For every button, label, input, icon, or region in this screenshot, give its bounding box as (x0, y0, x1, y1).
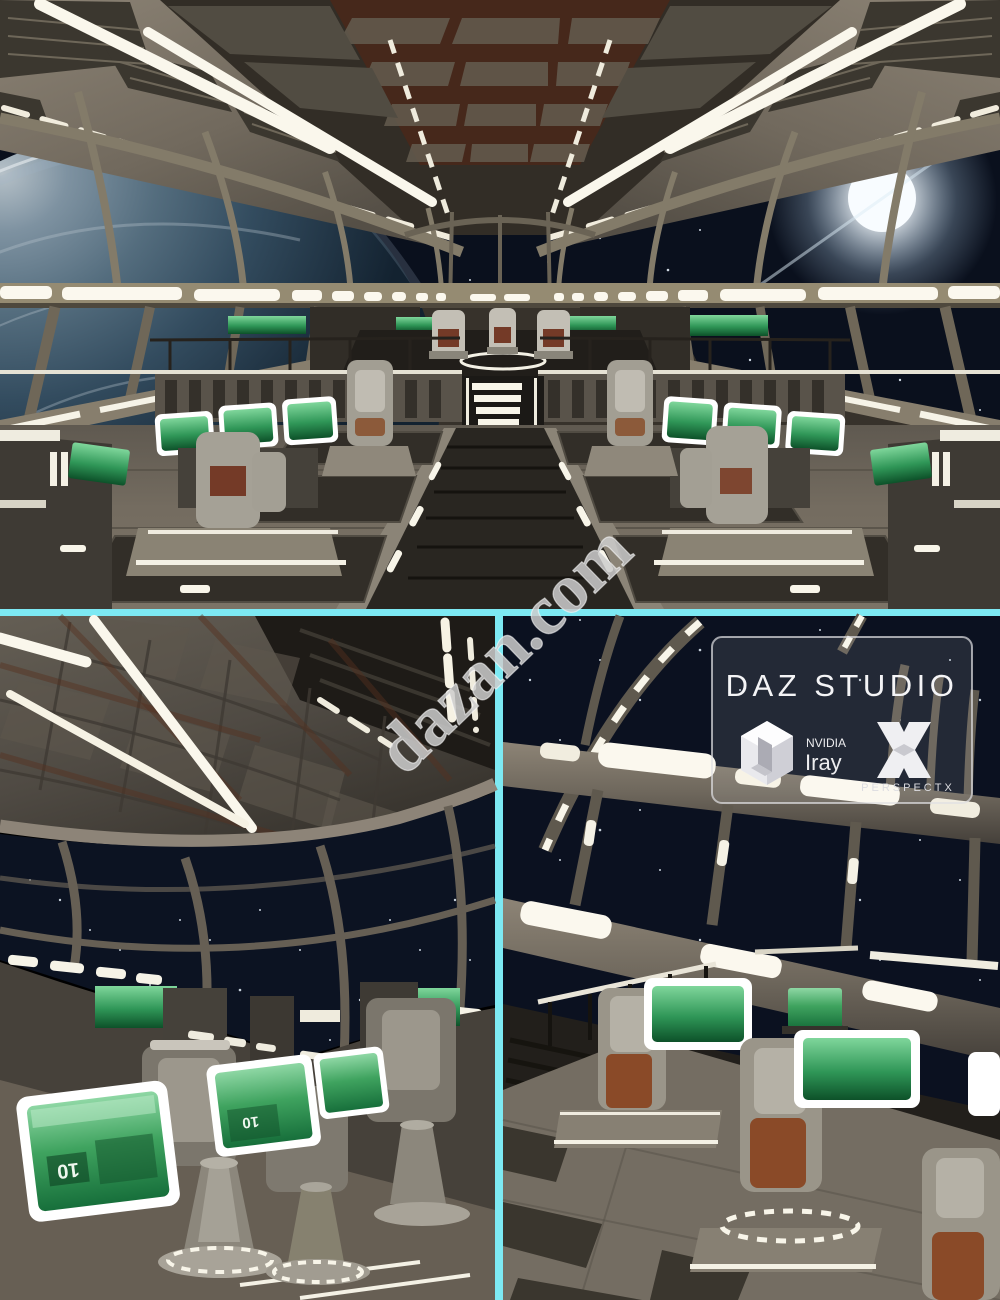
svg-text:DAZ STUDIO: DAZ STUDIO (726, 668, 959, 703)
svg-text:PERSPECTX: PERSPECTX (861, 782, 955, 794)
svg-text:10: 10 (56, 1158, 81, 1183)
svg-text:10: 10 (241, 1112, 260, 1131)
svg-text:Iray: Iray (805, 750, 842, 775)
svg-text:NVIDIA: NVIDIA (806, 736, 846, 750)
